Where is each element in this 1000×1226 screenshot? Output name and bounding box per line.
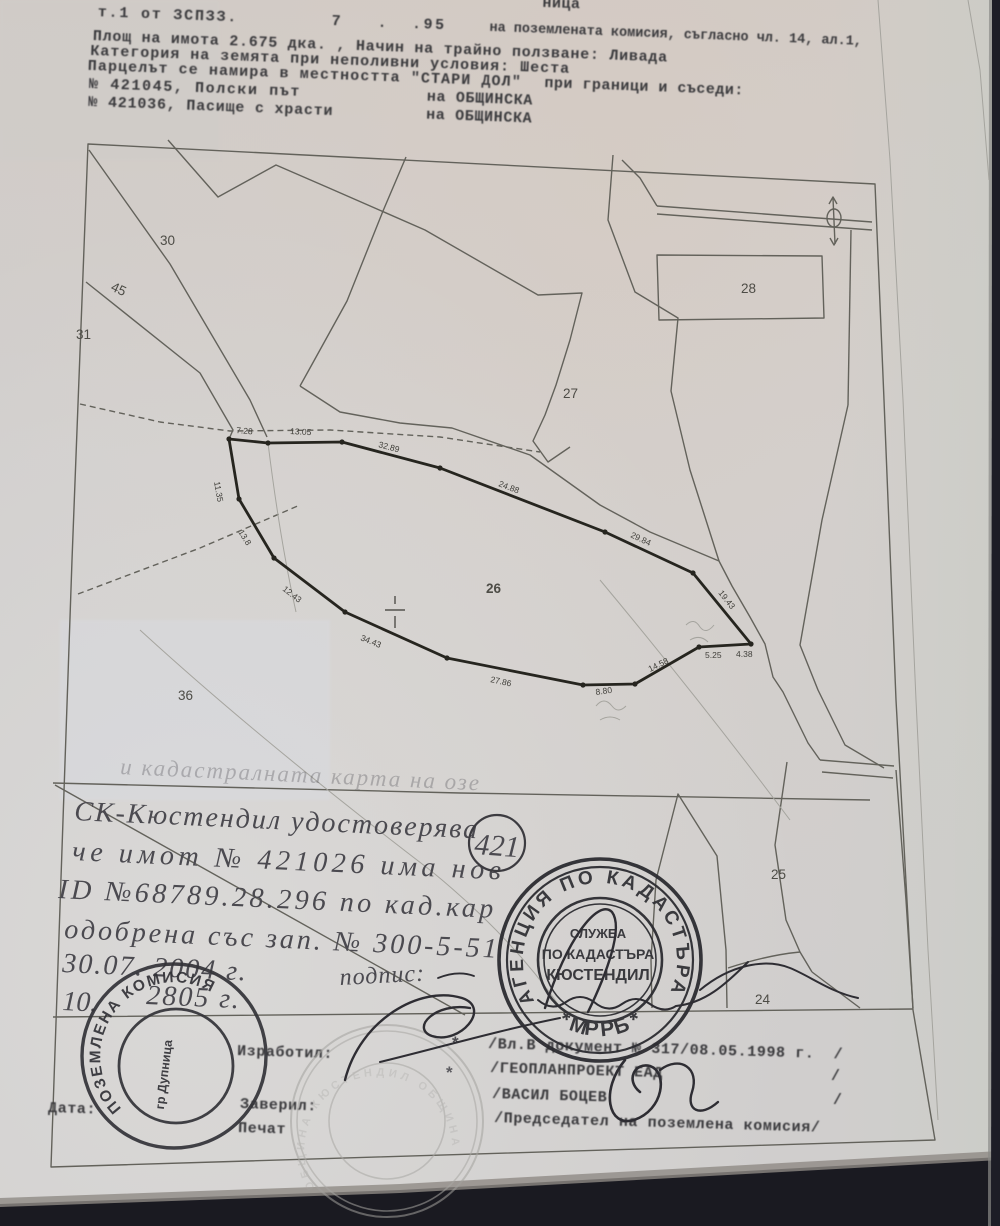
svg-text:*: * (446, 1063, 453, 1082)
svg-text:Печат: Печат (238, 1120, 287, 1138)
svg-text:/ВАСИЛ БОЦЕВ: /ВАСИЛ БОЦЕВ (492, 1086, 608, 1106)
svg-text:4.38: 4.38 (736, 649, 753, 659)
svg-text:Р: Р (583, 1017, 600, 1042)
svg-text:27: 27 (563, 386, 578, 401)
svg-text:7.28: 7.28 (236, 425, 254, 436)
svg-text:/: / (831, 1068, 841, 1085)
svg-text:36: 36 (178, 688, 193, 703)
svg-text:КЮСТЕНДИЛ: КЮСТЕНДИЛ (546, 967, 649, 984)
svg-text:31: 31 (76, 327, 91, 342)
svg-text:5.25: 5.25 (705, 650, 722, 660)
svg-text:26: 26 (486, 581, 502, 596)
svg-text:24: 24 (755, 992, 771, 1007)
svg-text:421: 421 (474, 828, 521, 864)
svg-text:30: 30 (160, 233, 175, 248)
svg-text:25: 25 (771, 867, 786, 882)
svg-text:/: / (833, 1092, 843, 1109)
svg-text:13.05: 13.05 (290, 426, 312, 437)
svg-text:ПО КАДАСТЪРА: ПО КАДАСТЪРА (542, 946, 654, 962)
svg-text:ница: ница (542, 0, 581, 13)
svg-text:28: 28 (741, 281, 756, 296)
svg-text:подпис:: подпис: (339, 961, 426, 991)
svg-text:Дата:: Дата: (48, 1100, 97, 1118)
